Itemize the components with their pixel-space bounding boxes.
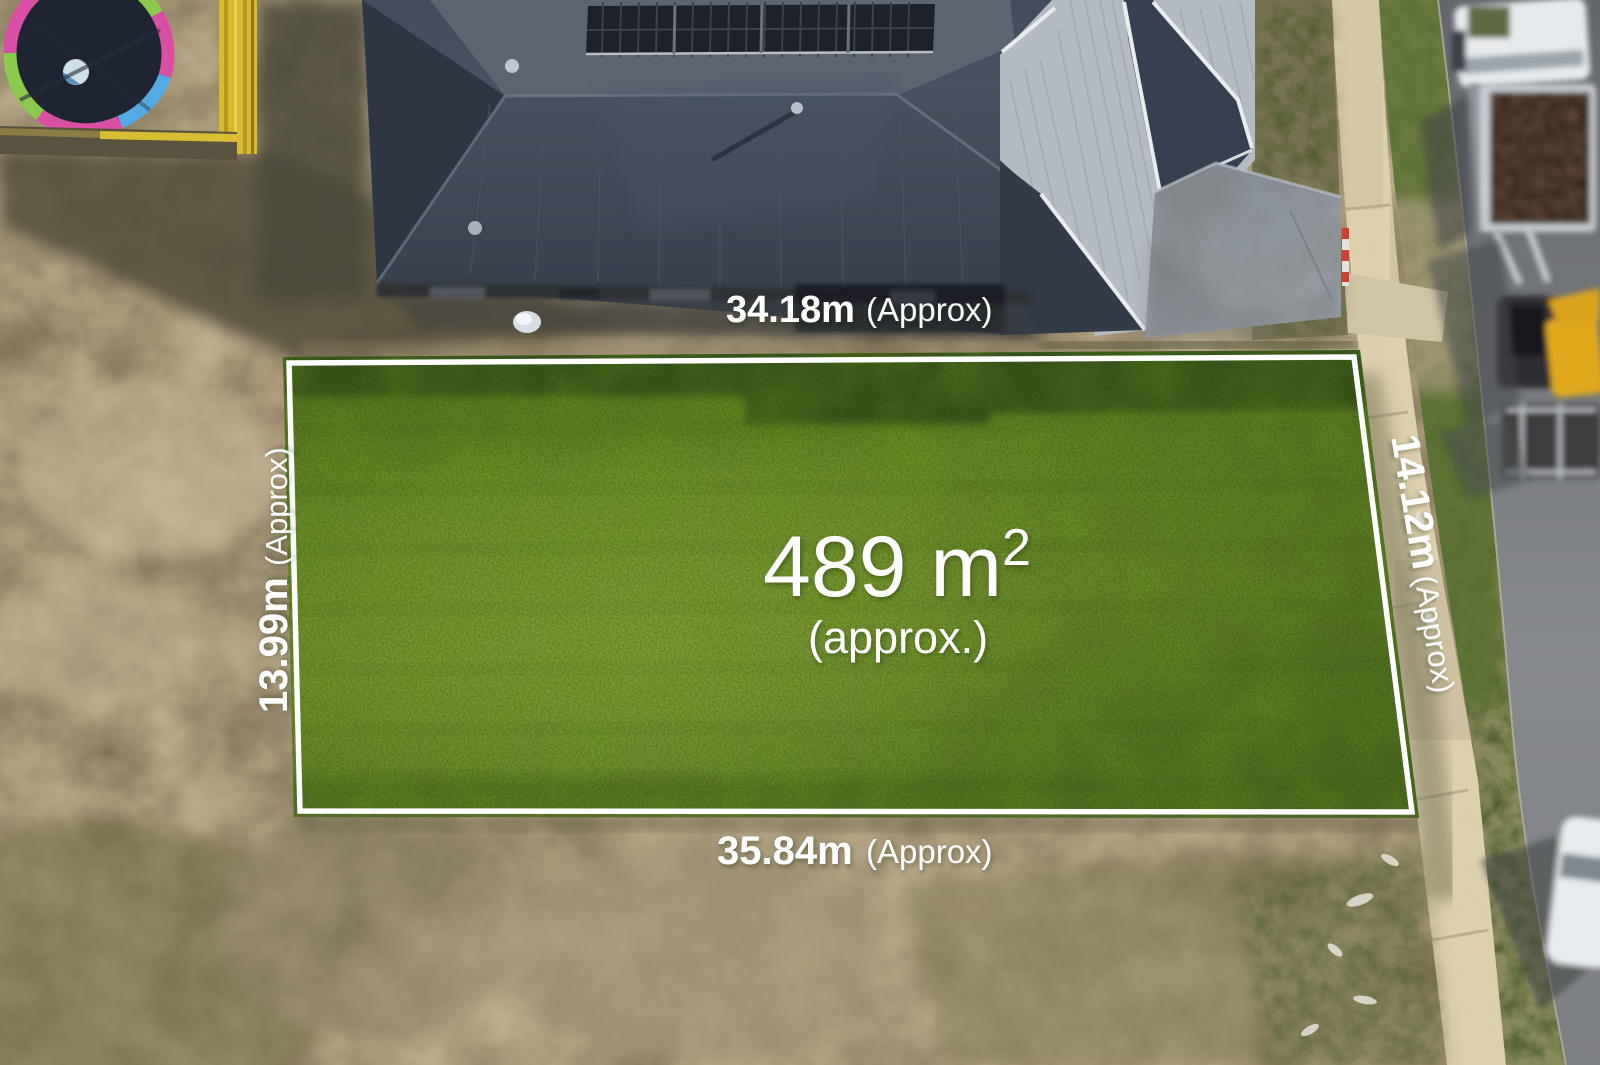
svg-text:35.84m: 35.84m [717, 829, 853, 873]
svg-text:13.99m: 13.99m [252, 577, 296, 713]
svg-text:(Approx): (Approx) [866, 291, 993, 328]
svg-text:34.18m: 34.18m [726, 289, 855, 331]
svg-text:489 m2: 489 m2 [763, 519, 1031, 615]
svg-text:(approx.): (approx.) [808, 612, 988, 663]
svg-text:(Approx): (Approx) [259, 447, 294, 566]
svg-text:(Approx): (Approx) [866, 833, 993, 870]
